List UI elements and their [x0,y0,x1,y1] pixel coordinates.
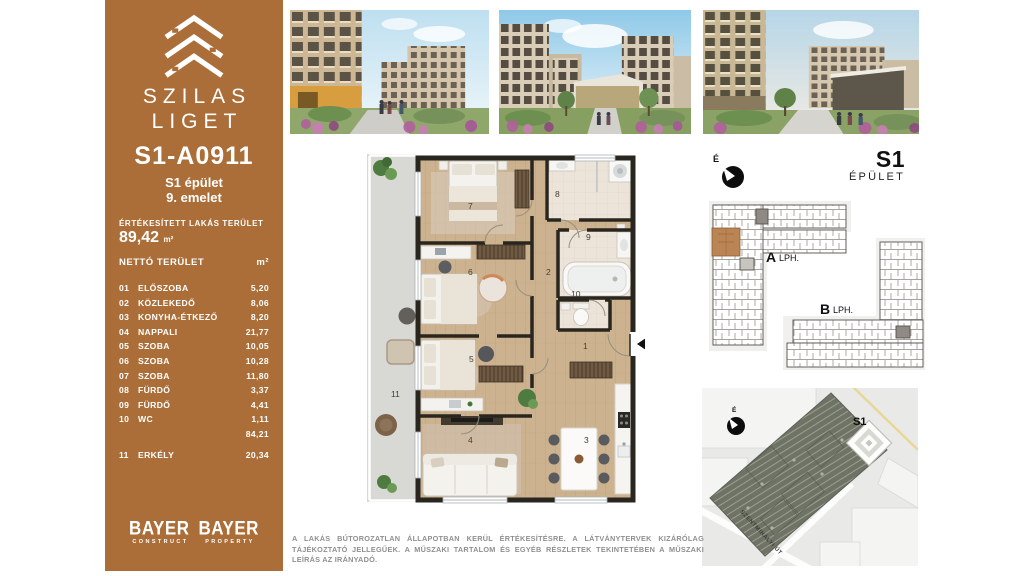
room-label-2: 2 [546,267,551,277]
building-code: S1 [808,148,905,170]
render-photo-3 [703,10,919,134]
net-area-label: NETTÓ TERÜLET [119,257,204,268]
table-subtotal-row: 84,21 [119,427,269,442]
room-label-3: 3 [584,435,589,445]
table-row: 07SZOBA11,80 [119,369,269,384]
table-row: 04NAPPALI21,77 [119,325,269,340]
brand-line1: SZILAS [105,84,283,109]
room-label-8: 8 [555,189,560,199]
render-scene-2 [499,10,691,134]
net-total: 84,21 [246,427,269,442]
unit-id: S1-A0911 [105,142,283,171]
developer-logos: BAYER CONSTRUCT BAYER PROPERTY [105,521,283,545]
unit-building: S1 épület [105,175,283,190]
sidebar: SZILAS LIGET S1-A0911 S1 épület 9. emele… [105,0,283,571]
room-label-7: 7 [468,201,473,211]
room-label-4: 4 [468,435,473,445]
roof-logo-icon [154,11,234,79]
sold-area-label: ÉRTÉKESÍTETT LAKÁS TERÜLET [119,219,264,228]
table-row: 11ERKÉLY20,34 [119,448,269,463]
north-compass-icon: É [708,150,754,196]
stair-a-letter: A [766,249,776,265]
site-map: S1 É SZENTMIHÁLYI ÚT [702,388,918,566]
floor-plan: 7 8 9 2 6 10 5 1 11 4 3 [365,148,645,508]
balcony-pouf [399,308,416,325]
balcony-area [367,154,417,502]
stair-b-letter: B [820,301,830,317]
building-title-block: S1 ÉPÜLET [808,148,905,184]
building-word: ÉPÜLET [808,170,905,184]
sitemap-s1-label: S1 [853,416,866,428]
table-row: 06SZOBA10,28 [119,354,269,369]
logo-bayer-property: BAYER PROPERTY [199,521,259,545]
net-area-header: NETTÓ TERÜLET m² [119,257,269,268]
table-row: 01ELŐSZOBA5,20 [119,281,269,296]
room-label-6: 6 [468,267,473,277]
room-table: 01ELŐSZOBA5,20 02KÖZLEKEDŐ8,06 03KONYHA-… [119,281,269,442]
render-photo-1 [290,10,489,134]
sold-area-value: 89,42 m² [119,229,173,247]
brand-line2: LIGET [105,109,283,134]
render-scene-1 [290,10,489,134]
key-plan: A LPH. B LPH. [700,200,925,370]
north-label: É [713,154,719,164]
table-row: 03KONYHA-ÉTKEZŐ8,20 [119,310,269,325]
table-row: 08FÜRDŐ3,37 [119,383,269,398]
table-row: 05SZOBA10,05 [119,339,269,354]
render-photo-2 [499,10,691,134]
keyplan-labels: A LPH. B LPH. [766,249,853,317]
unit-location: S1 épület 9. emelet [105,175,283,205]
table-row: 02KÖZLEKEDŐ8,06 [119,296,269,311]
stair-b-word: LPH. [833,305,853,315]
table-row: 09FÜRDŐ4,41 [119,398,269,413]
entry-wardrobe [570,362,612,378]
room-label-1: 1 [583,341,588,351]
balcony-armchair [387,340,414,364]
room-label-11: 11 [391,389,400,399]
table-row: 10WC1,11 [119,412,269,427]
disclaimer-text: A LAKÁS BÚTOROZATLAN ÁLLAPOTBAN KERÜL ÉR… [292,534,704,566]
room-label-9: 9 [586,232,591,242]
stair-a-word: LPH. [779,253,799,263]
room-label-10: 10 [571,289,581,299]
render-scene-3 [703,10,919,134]
entrance-arrow-icon [637,338,645,350]
room-label-5: 5 [469,354,474,364]
logo-bayer-construct: BAYER CONSTRUCT [129,521,189,545]
keyplan-building-b [787,242,923,367]
balcony-row-wrap: 11ERKÉLY20,34 [119,448,269,463]
brochure-page: SZILAS LIGET S1-A0911 S1 épület 9. emele… [0,0,1024,576]
brand-name: SZILAS LIGET [105,84,283,134]
unit-floor: 9. emelet [105,190,283,205]
sitemap-north-label: É [732,405,737,414]
net-area-unit: m² [256,257,269,268]
